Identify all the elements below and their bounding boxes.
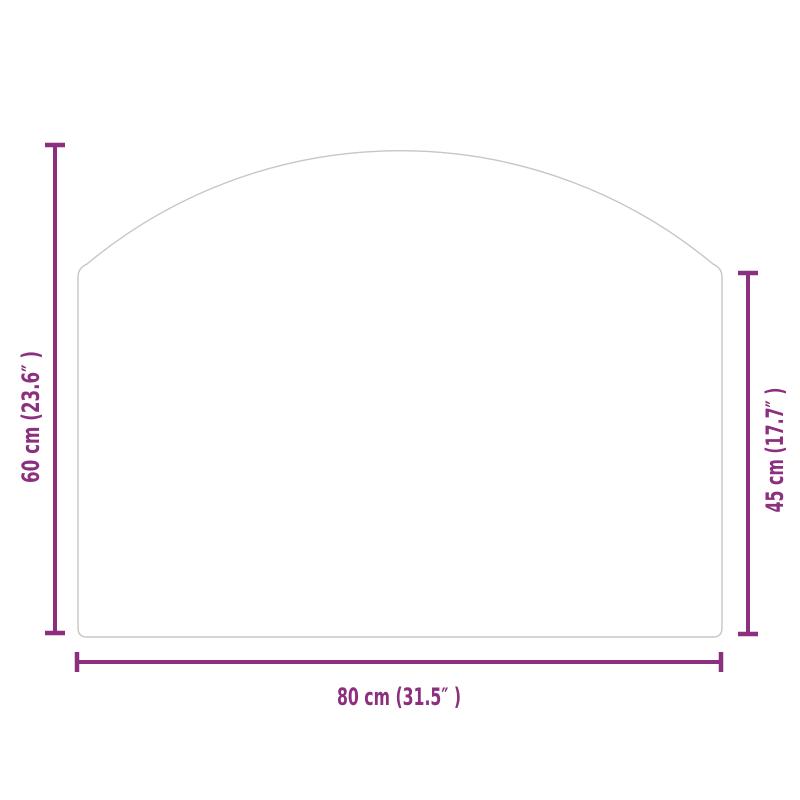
width-dimension: 80 cm (31.5″ ) [77, 652, 721, 711]
height-dimension-label: 60 cm (23.6″ ) [17, 351, 45, 483]
side-height-dimension: 45 cm (17.7″ ) [738, 273, 789, 634]
glass-plate-outline [78, 151, 722, 637]
side-height-dimension-label: 45 cm (17.7″ ) [761, 388, 789, 513]
diagram-canvas: 60 cm (23.6″ ) 45 cm (17.7″ ) 80 cm (31.… [0, 0, 800, 800]
height-dimension: 60 cm (23.6″ ) [17, 145, 65, 633]
product-dimension-diagram: 60 cm (23.6″ ) 45 cm (17.7″ ) 80 cm (31.… [0, 0, 800, 800]
width-dimension-label: 80 cm (31.5″ ) [337, 683, 461, 711]
